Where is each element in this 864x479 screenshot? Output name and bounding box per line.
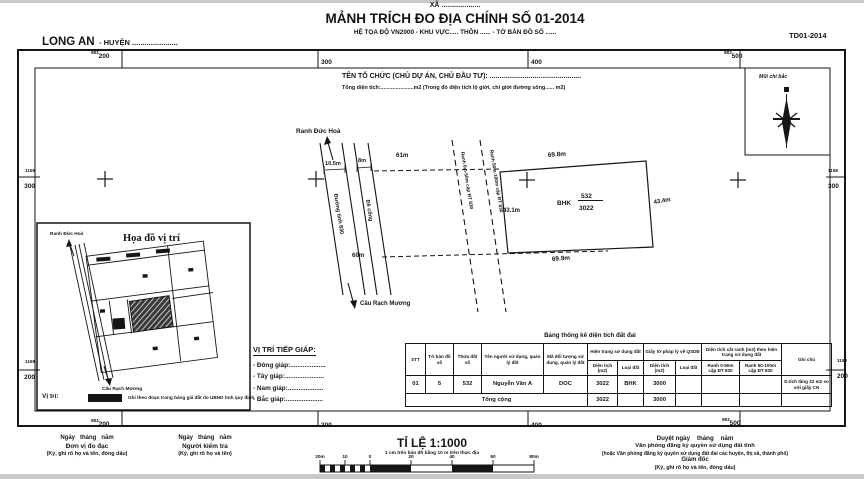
parcel-dim-right: 43.4m (653, 197, 671, 206)
parcel-dim-bottom: 69.9m (552, 255, 571, 263)
ranh-50-100-label: Ranh 50m-100m cặp ĐT 830 (488, 149, 504, 213)
inset-subject-parcel (129, 295, 173, 332)
col-header-map-sheet: Tờ bản đồ số (426, 344, 454, 376)
inset-cau-rach-muong-label: Cầu Rạch Mương (102, 386, 142, 392)
adjacency-block: VỊ TRÍ TIẾP GIÁP: - Đông giáp:..........… (253, 339, 326, 403)
adjacency-south: - Nam giáp:.................... (253, 385, 326, 392)
dim-road1: 10.5m (325, 161, 341, 167)
sig2-note: (Ký, ghi rõ họ và tên) (140, 451, 270, 458)
cell-map-sheet: 5 (426, 376, 454, 394)
grid-label-right-300: 1158300 (828, 163, 854, 199)
compass-label: Mũi chỉ bắc (759, 73, 787, 80)
province-name: LONG AN (42, 36, 95, 48)
grid-label-left-200: 1158200 (11, 354, 35, 390)
col-header-owner: Tên người sử dụng, quản lý đất (482, 344, 544, 376)
sig1-role: Đơn vị đo đạc (20, 443, 154, 451)
cell-stt: 01 (406, 376, 426, 394)
parcel-number: 532 (581, 193, 592, 200)
cell-current-landtype: BHK (618, 376, 644, 394)
inset-map: Họa đồ vị trí Ranh Đức Hoà Cầu Rạch Mươn… (37, 223, 250, 410)
adjacency-east: - Đông giáp:.................... (253, 362, 326, 369)
cell-owner: Nguyễn Văn A (482, 376, 544, 394)
total-area-line: Tổng diện tích:......................m2 … (342, 85, 565, 91)
col-header-user-code: Mã đối tượng sử dụng, quản lý đất (544, 344, 588, 376)
cau-rach-muong-label: Cầu Rạch Mương (360, 301, 411, 307)
inset-ranh-duc-hoa-label: Ranh Đức Hoà (50, 231, 84, 237)
col-header-current-use: Hiện trạng sử dụng đất (588, 344, 644, 361)
grid-label-bottom-400: 400 (531, 414, 542, 432)
sig1-note: (Ký, ghi rõ họ và tên, đóng dấu) (20, 451, 154, 458)
col-header-parcel-no: Thửa đất số (454, 344, 482, 376)
north-arrow-icon (773, 87, 800, 148)
total-legal-landtype (676, 394, 702, 407)
sig1-date: Ngày tháng năm (20, 435, 154, 443)
subheader-ranh1: Ranh 0-50m cặp ĐT 830 (702, 361, 740, 376)
inset-title: Họa đồ vị trí (123, 233, 181, 244)
cell-user-code: DOC (544, 376, 588, 394)
inset-legend-label: Vị trí: (42, 393, 59, 400)
col-header-stt: STT (406, 344, 426, 376)
sig2-role: Người kiểm tra (140, 443, 270, 451)
total-legal-area: 3000 (644, 394, 676, 407)
parcel-label: BHK 532 3022 (557, 193, 603, 212)
cell-legal-landtype (676, 376, 702, 394)
dim-line-60m (382, 251, 608, 257)
dim-61: 61m (396, 152, 409, 159)
table-total-row: Tổng cộng 3022 3000 (406, 394, 832, 407)
total-current-area: 3022 (588, 394, 618, 407)
adjacency-west: - Tây giáp:...................... (253, 373, 326, 380)
subheader-ranh2: Ranh 50-100m cặp ĐT 830 (740, 361, 782, 376)
inset-parcels (86, 241, 218, 373)
road1-label: Đường tỉnh 830 (332, 193, 344, 234)
inset-road-lines (70, 243, 113, 381)
cell-legal-area: 3000 (644, 376, 676, 394)
parcel-dim-top: 69.8m (548, 151, 567, 159)
scale-tick-labels: 20m 10 0 20 40 60 80m (300, 455, 560, 465)
province-line: LONG AN - HUYỆN ...................... (42, 32, 178, 50)
grid-label-bottom-300: 300 (321, 414, 332, 432)
subheader-landtype-2: Loại đất (676, 361, 702, 376)
cell-parcel-no: 532 (454, 376, 482, 394)
table-row: 01 5 532 Nguyễn Văn A DOC 3022 BHK 3000 … (406, 376, 832, 394)
grid-label-left-300: 1158300 (11, 163, 35, 199)
parcel-dim-left: 43.1m (503, 208, 520, 214)
signature-block-approval: Duyệt ngày tháng năm Văn phòng đăng ký q… (575, 435, 815, 472)
sig2-date: Ngày tháng năm (140, 435, 270, 443)
signature-block-inspector: Ngày tháng năm Người kiểm tra (Ký, ghi r… (140, 435, 270, 458)
grid-plus-marks (97, 171, 746, 188)
col-header-notes: Ghi chú (782, 344, 832, 376)
col-header-legal-docs: Giấy tờ pháp lý về QSDĐ (644, 344, 702, 361)
stats-table: STT Tờ bản đồ số Thửa đất số Tên người s… (405, 343, 832, 407)
inset-legend-note: Ghi theo đoạn trong bảng giá đất do UBND… (128, 395, 254, 400)
inset-legend-swatch (88, 394, 122, 402)
grid-label-top-200: 983200 (91, 45, 110, 63)
parcel-area: 3022 (579, 205, 594, 212)
sig3-date: Duyệt ngày tháng năm (575, 435, 815, 443)
dim-60: 60m (352, 252, 365, 259)
subheader-area-2: Diện tích (m2) (644, 361, 676, 376)
total-label: Tổng cộng (406, 394, 588, 407)
stats-table-title: Bảng thống kê diện tích đất đai (405, 332, 775, 339)
adjacency-north: - Bắc giáp:..................... (253, 396, 326, 403)
grid-label-bottom-200: 983200 (91, 413, 110, 431)
adjacency-title: VỊ TRÍ TIẾP GIÁP: (253, 345, 316, 356)
cau-rach-muong-arrow-icon (348, 283, 357, 309)
map-linework: Mũi chỉ bắc Đường tỉnh 830 Đê cống Ranh … (0, 0, 864, 479)
parcel-outline (500, 161, 653, 253)
dim-line-61m (374, 169, 500, 171)
sheet-code: TD01-2014 (789, 31, 827, 40)
grid-label-top-400: 400 (531, 51, 542, 69)
subheader-area-1: Diện tích (m2) (588, 361, 618, 376)
compass-box: Mũi chỉ bắc (745, 68, 830, 155)
cell-ranh1 (702, 376, 740, 394)
total-current-landtype (618, 394, 644, 407)
parcel-land-type: BHK (557, 200, 571, 207)
sig3-role: Giám đốc (575, 457, 815, 465)
subheader-landtype-1: Loại đất (618, 361, 644, 376)
grid-label-top-500: 983500 (724, 45, 743, 63)
org-name-line: TÊN TỔ CHỨC (CHỦ DỰ ÁN, CHỦ ĐẦU TƯ): ...… (342, 73, 581, 80)
district-blank: - HUYỆN ...................... (99, 38, 178, 47)
col-header-cut-area: Diện tích cắt ranh (m2) theo hiện trạng … (702, 344, 782, 361)
page-title: MẢNH TRÍCH ĐO ĐỊA CHÍNH SỐ 01-2014 (50, 11, 860, 26)
total-ranh2 (740, 394, 782, 407)
sig3-office: Văn phòng đăng ký quyền sử dụng đất tỉnh (575, 443, 815, 451)
signature-block-surveyor: Ngày tháng năm Đơn vị đo đạc (Ký, ghi rõ… (20, 435, 154, 458)
cell-ranh2 (740, 376, 782, 394)
scale-title: TỈ LỆ 1:1000 (360, 436, 504, 450)
dim-road2: 8m (358, 158, 366, 164)
grid-label-right-200: 1158200 (837, 353, 863, 389)
sig3-note: (Ký, ghi rõ họ và tên, đóng dấu) (575, 465, 815, 472)
grid-label-bottom-500: 983500 (722, 412, 741, 430)
grid-label-top-300: 300 (321, 51, 332, 69)
total-notes (782, 394, 832, 407)
ranh-duc-hoa-arrow-icon (324, 136, 333, 160)
cell-notes: D.tích tăng 22 m2 so với giấy CN (782, 376, 832, 394)
cell-current-area: 3022 (588, 376, 618, 394)
commune-line: XÃ .................... (50, 2, 860, 9)
cadastral-sheet: { "header": { "commune": "XÃ ...........… (0, 0, 864, 479)
ranh-duc-hoa-label: Ranh Đức Hoà (296, 128, 341, 135)
total-ranh1 (702, 394, 740, 407)
